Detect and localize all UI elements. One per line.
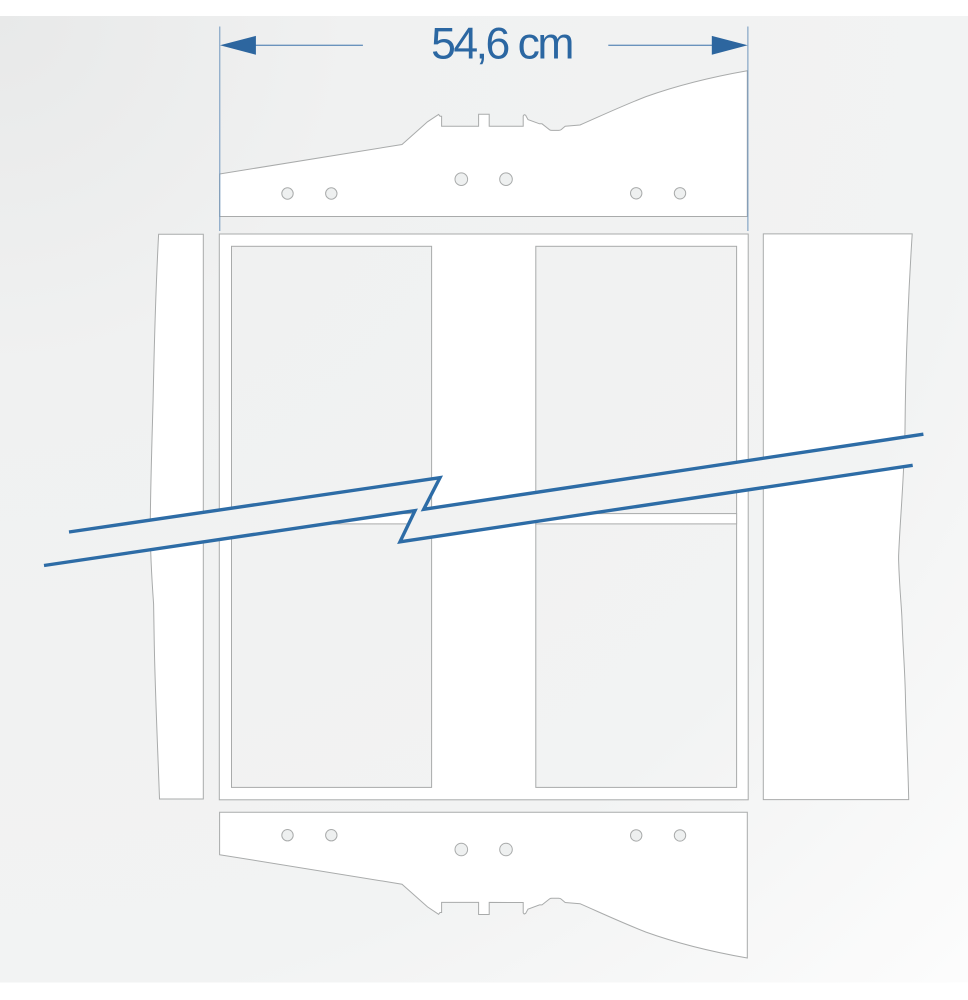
svg-text:54,6 cm: 54,6 cm [431, 19, 572, 68]
